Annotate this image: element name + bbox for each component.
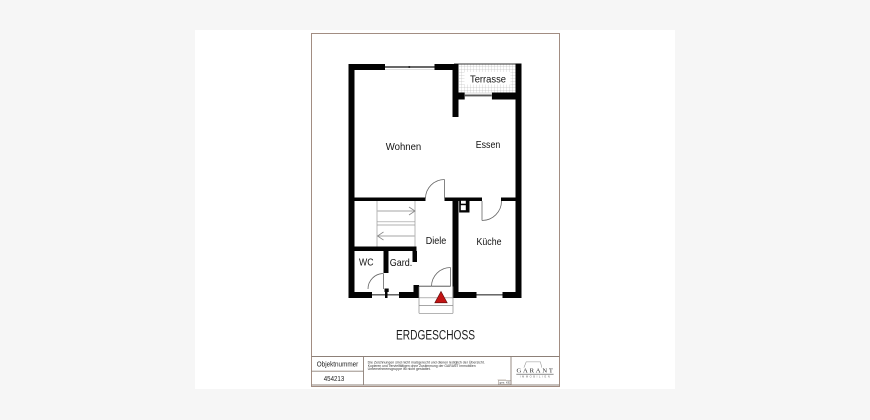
svg-text:Küche: Küche: [477, 236, 502, 248]
svg-text:IMMOBILIEN: IMMOBILIEN: [520, 374, 550, 378]
svg-text:WC: WC: [359, 257, 374, 269]
svg-text:Diele: Diele: [426, 235, 447, 247]
svg-text:Objektnummer: Objektnummer: [317, 360, 359, 369]
svg-text:gez. KE: gez. KE: [500, 381, 511, 385]
svg-text:ERDGESCHOSS: ERDGESCHOSS: [396, 327, 475, 342]
svg-text:Wohnen: Wohnen: [386, 141, 422, 153]
svg-text:Unternehmensgruppe ist nicht g: Unternehmensgruppe ist nicht gestattet.: [368, 367, 431, 371]
svg-text:Terrasse: Terrasse: [470, 73, 506, 85]
svg-text:Gard.: Gard.: [390, 257, 413, 269]
svg-text:454213: 454213: [324, 374, 345, 383]
svg-text:Essen: Essen: [476, 139, 501, 151]
